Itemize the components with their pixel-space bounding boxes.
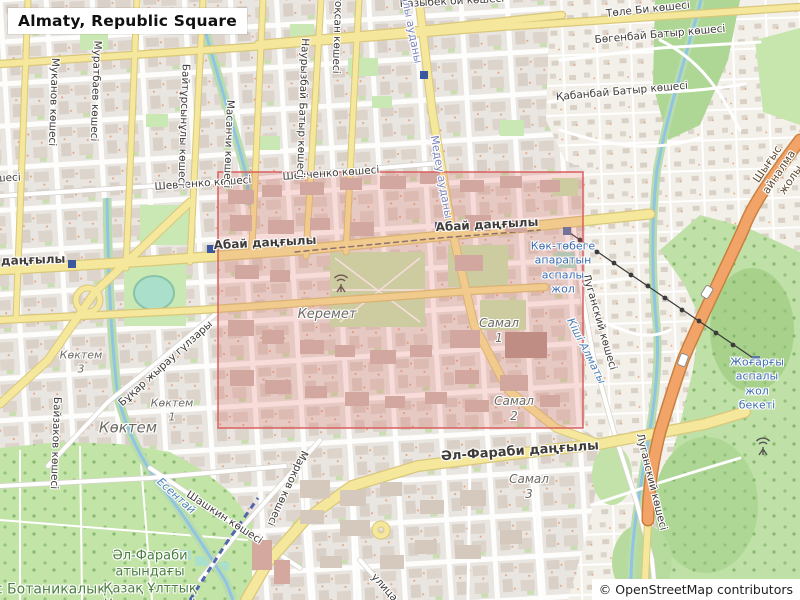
area-label-botanical-garden: ас Ботаникалық [0,581,106,599]
osm-attribution-link[interactable]: © OpenStreetMap contributors [592,579,800,600]
place-label-koktem-1: Көктем 1 [151,396,194,424]
place-label-samal-3: Самал 3 [509,472,549,502]
street-label-cut: көшесі [0,171,21,186]
place-label-samal-2: Самал 2 [494,394,534,424]
poi-label-upper-cable-station: Жоғарғы аспалы жол бекеті [730,355,784,412]
area-label-university: Әл-Фараби атындағы Қазақ Ұлттық Универси… [103,549,197,600]
map-container[interactable]: Төле Би көшесі Бөгенбай Батыр көшесі Қаб… [0,0,800,600]
place-label-koktem: Көктем [99,419,157,438]
poi-label-cable-car: Көк-төбеге апаратын аспалы жол [531,239,595,296]
highlight-region [218,172,583,428]
place-label-keremet: Керемет [298,307,357,323]
place-label-koktem-3: Көктем 3 [60,348,103,376]
map-title: Almaty, Republic Square [8,8,247,34]
place-label-samal-1: Самал 1 [479,316,519,346]
